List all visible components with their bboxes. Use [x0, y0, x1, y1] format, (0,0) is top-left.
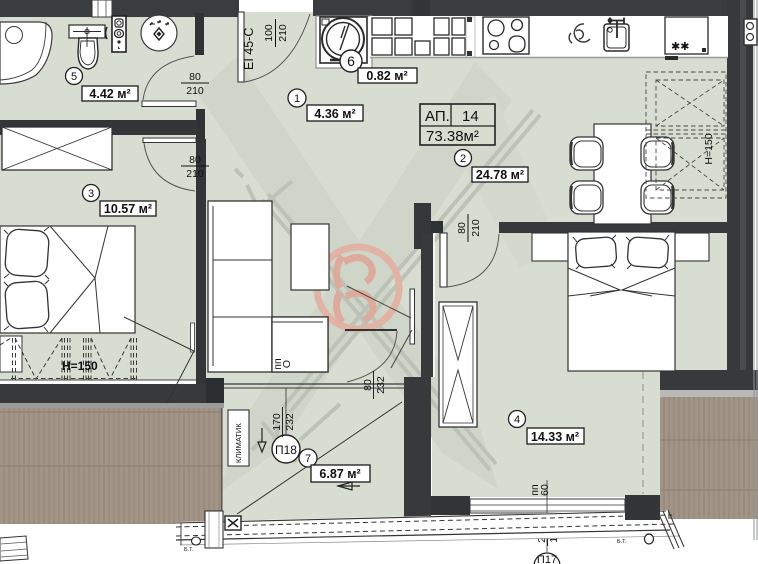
svg-text:4.36 м²: 4.36 м²	[314, 107, 355, 121]
svg-text:80: 80	[362, 379, 374, 391]
svg-text:210: 210	[186, 168, 204, 180]
svg-text:170: 170	[271, 413, 283, 431]
svg-text:5: 5	[71, 71, 77, 83]
svg-text:210: 210	[277, 24, 289, 42]
svg-text:0.82 м²: 0.82 м²	[366, 69, 407, 83]
svg-text:H=150: H=150	[62, 359, 98, 373]
svg-text:КЛИМАТИК: КЛИМАТИК	[234, 423, 243, 463]
svg-text:14.33 м²: 14.33 м²	[531, 430, 579, 444]
svg-text:АП.: АП.	[425, 108, 450, 125]
svg-text:О: О	[281, 360, 293, 368]
svg-text:4: 4	[514, 414, 520, 426]
svg-text:7: 7	[305, 453, 311, 465]
svg-text:✱✱: ✱✱	[671, 41, 689, 53]
svg-text:73.38м²: 73.38м²	[426, 128, 479, 145]
svg-text:24.78 м²: 24.78 м²	[476, 168, 524, 182]
svg-text:6.87 м²: 6.87 м²	[319, 467, 360, 481]
svg-text:П18: П18	[275, 443, 297, 457]
svg-text:1: 1	[294, 93, 300, 105]
svg-text:210: 210	[186, 85, 204, 97]
svg-text:H=150: H=150	[703, 133, 715, 164]
svg-text:100: 100	[263, 24, 275, 42]
svg-text:6: 6	[347, 53, 355, 69]
svg-text:232: 232	[375, 376, 387, 394]
svg-text:Б.Т.: Б.Т.	[617, 539, 627, 545]
svg-text:80: 80	[189, 154, 201, 166]
svg-text:Б.Т.: Б.Т.	[184, 547, 194, 553]
svg-text:10.57 м²: 10.57 м²	[104, 202, 152, 216]
svg-text:2: 2	[460, 153, 466, 165]
svg-text:П17: П17	[537, 554, 557, 564]
svg-text:210: 210	[470, 219, 482, 237]
svg-text:60: 60	[539, 484, 551, 496]
svg-text:80: 80	[456, 222, 468, 234]
svg-text:3: 3	[88, 188, 94, 200]
svg-text:80: 80	[189, 71, 201, 83]
svg-text:EI 45-C: EI 45-C	[242, 28, 256, 70]
svg-text:14: 14	[462, 108, 479, 125]
svg-text:4.42 м²: 4.42 м²	[89, 87, 130, 101]
